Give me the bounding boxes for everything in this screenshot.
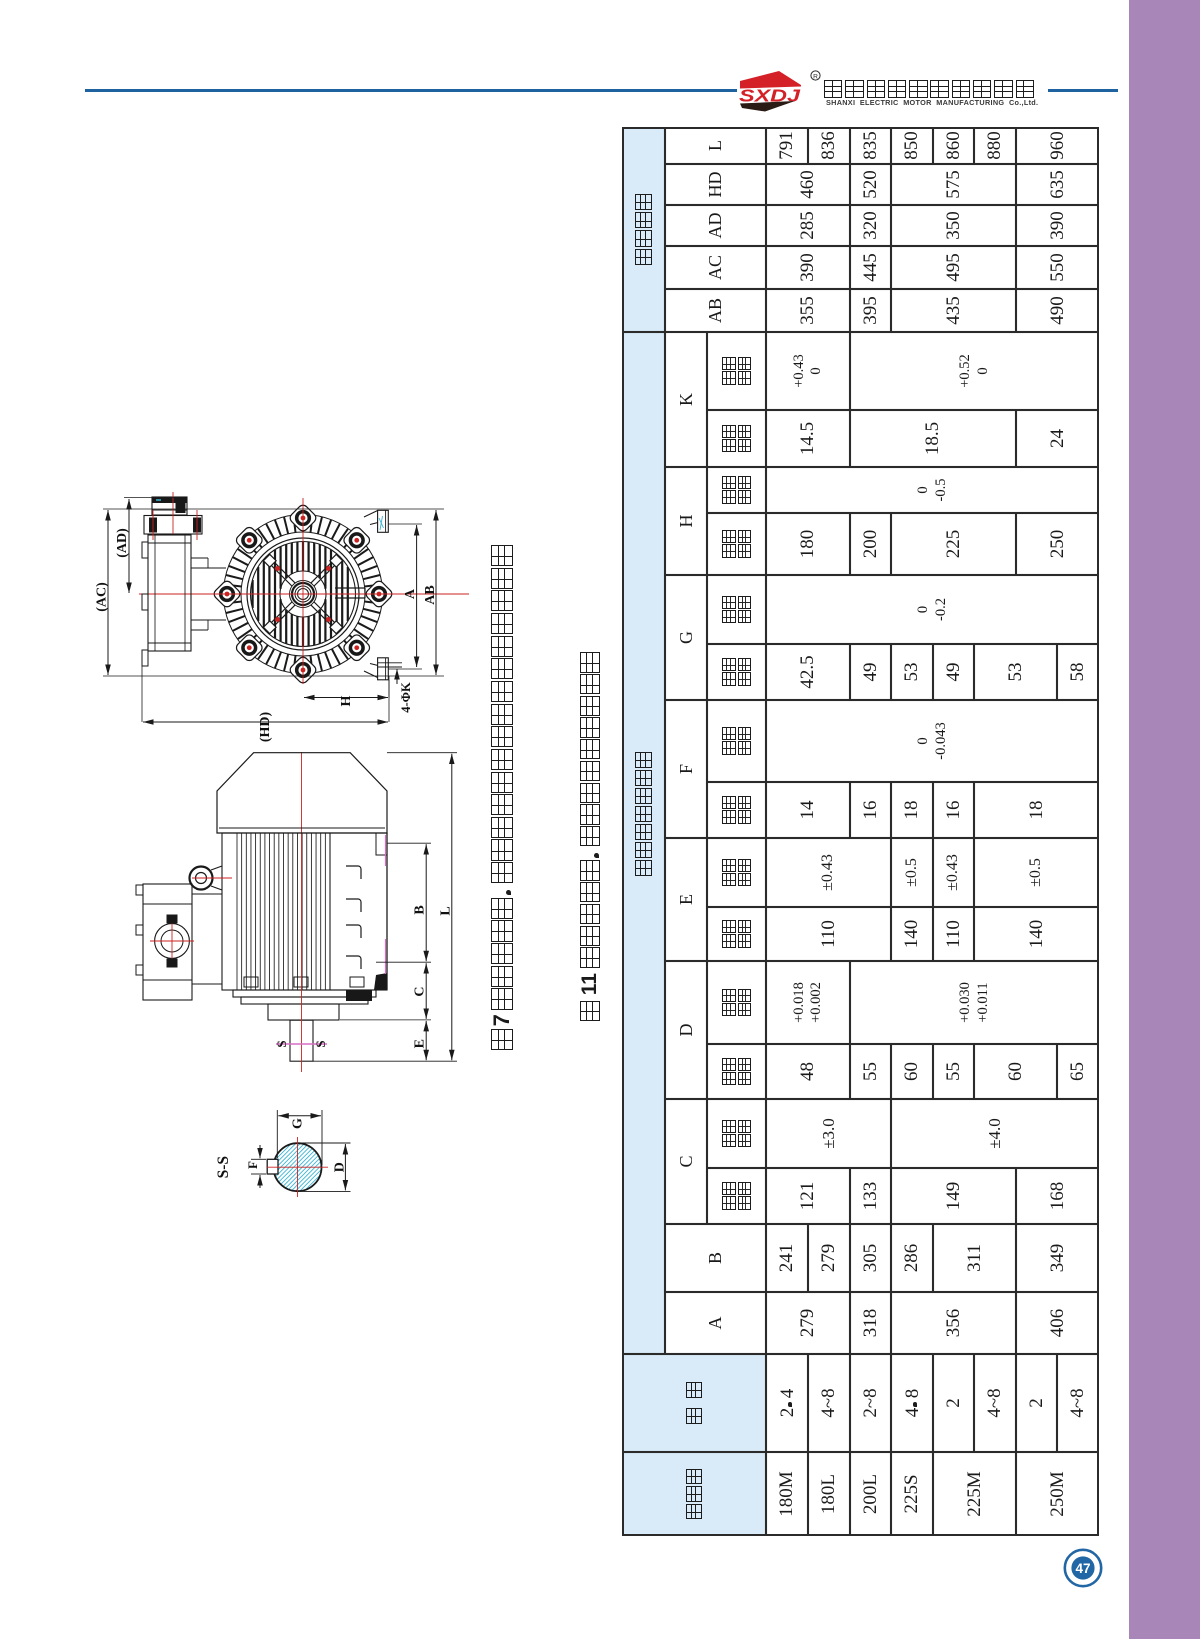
svg-text:S: S — [313, 1040, 328, 1047]
svg-text:D: D — [333, 1162, 348, 1172]
svg-text:E: E — [413, 1039, 428, 1048]
svg-text:C: C — [413, 986, 428, 996]
svg-text:A: A — [403, 588, 418, 599]
svg-text:47: 47 — [1075, 1561, 1090, 1576]
svg-text:4-ΦK: 4-ΦK — [399, 682, 413, 713]
svg-text:H: H — [339, 695, 354, 706]
svg-text:R: R — [813, 73, 818, 80]
svg-text:G: G — [291, 1118, 306, 1129]
svg-text:(AD): (AD) — [115, 528, 130, 558]
svg-text:AB: AB — [423, 585, 438, 604]
svg-text:S: S — [274, 1040, 289, 1047]
svg-text:S-S: S-S — [215, 1156, 232, 1178]
svg-text:F: F — [245, 1161, 260, 1169]
svg-text:(HD): (HD) — [258, 712, 273, 743]
svg-text:(AC): (AC) — [95, 582, 110, 612]
svg-text:B: B — [413, 905, 428, 914]
svg-text:L: L — [438, 906, 453, 915]
